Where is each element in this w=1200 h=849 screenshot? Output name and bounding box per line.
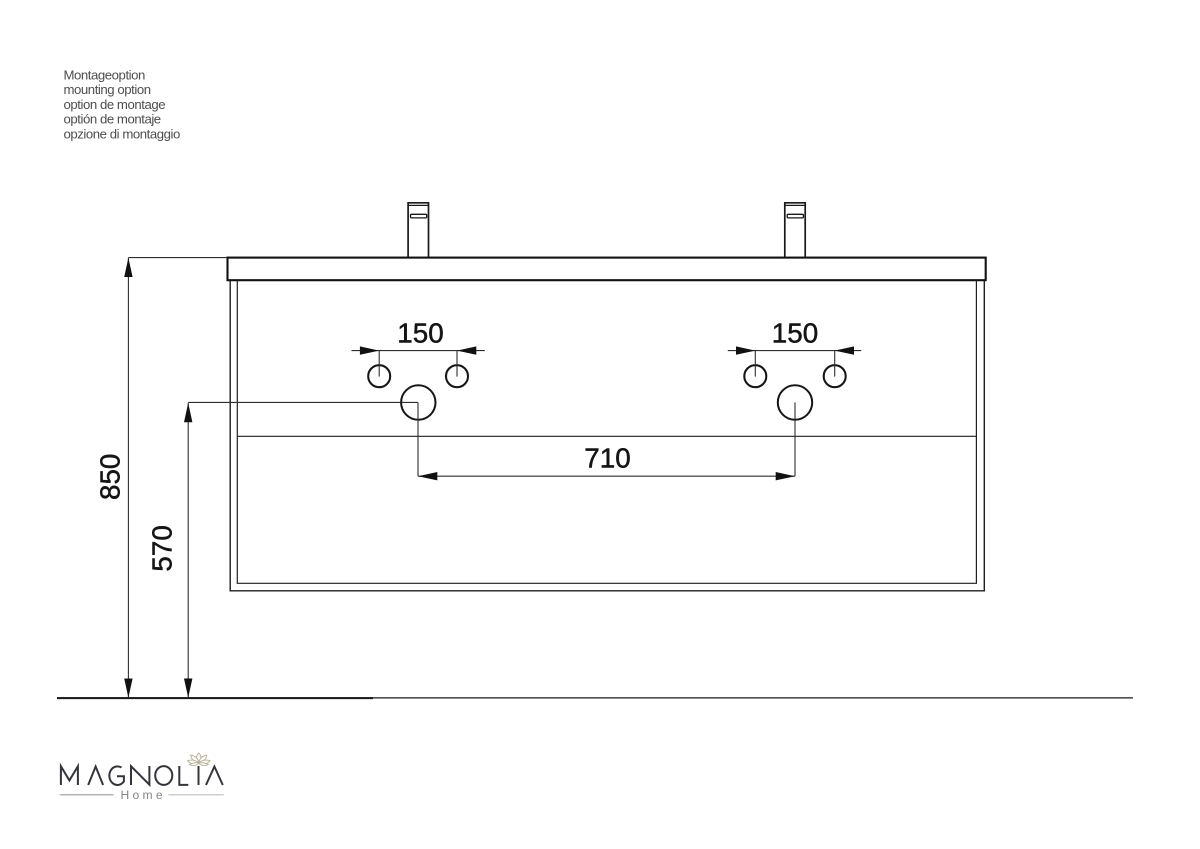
svg-text:850: 850: [94, 454, 125, 500]
svg-text:Home: Home: [121, 788, 166, 802]
svg-text:option de montage: option de montage: [64, 97, 166, 112]
svg-text:Montageoption: Montageoption: [64, 67, 146, 82]
svg-text:710: 710: [584, 443, 630, 474]
svg-text:570: 570: [146, 525, 177, 571]
svg-text:opzione di montaggio: opzione di montaggio: [64, 127, 180, 142]
svg-text:mounting option: mounting option: [64, 82, 151, 97]
svg-text:optión de montaje: optión de montaje: [64, 112, 161, 127]
svg-text:150: 150: [772, 317, 818, 348]
svg-text:150: 150: [397, 317, 443, 348]
